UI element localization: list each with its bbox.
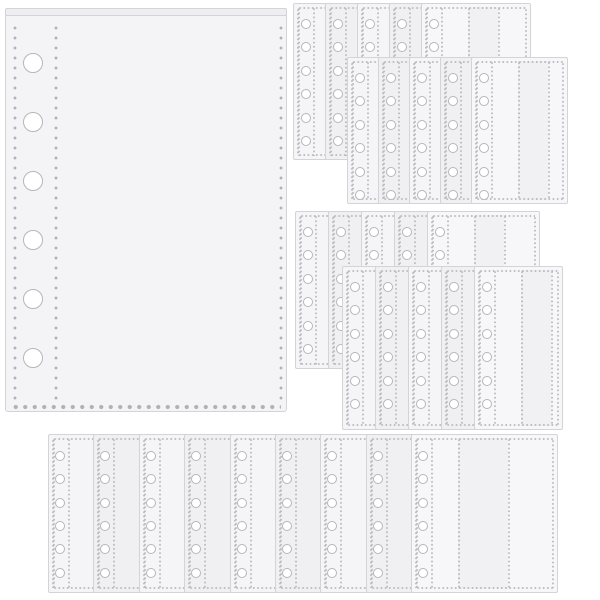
binder-hole <box>373 474 383 484</box>
binder-hole <box>282 568 292 578</box>
binder-hole <box>333 136 343 146</box>
strip-stitch-line <box>340 438 342 589</box>
binder-hole <box>479 120 489 130</box>
binder-hole <box>100 521 110 531</box>
binder-hole <box>482 376 492 386</box>
strip-stitch-line <box>159 438 161 589</box>
binder-hole <box>449 399 459 409</box>
stack-top-right-page-5 <box>471 57 568 204</box>
strip-stitch-line <box>380 270 382 426</box>
binder-hole <box>397 42 407 52</box>
strip-stitch-line <box>446 270 448 426</box>
binder-hole <box>417 120 427 130</box>
binder-hole <box>146 544 156 554</box>
binder-hole <box>355 190 365 200</box>
binder-hole <box>350 329 360 339</box>
strip-stitch-line <box>429 61 431 200</box>
sleeve-top-flap <box>5 8 287 16</box>
binder-hole <box>336 250 346 260</box>
binder-hole <box>303 344 313 354</box>
binder-hole <box>301 19 311 29</box>
binder-hole <box>449 305 459 315</box>
binder-hole <box>482 352 492 362</box>
strip-stitch-line <box>398 61 400 200</box>
binder-hole <box>482 329 492 339</box>
binder-hole <box>479 167 489 177</box>
strip-stitch-line <box>330 7 332 156</box>
binder-hole <box>448 120 458 130</box>
binder-hole <box>100 451 110 461</box>
binder-hole <box>449 282 459 292</box>
stack-middle-right-page-5 <box>474 266 563 430</box>
binder-hole <box>55 544 65 554</box>
stitch-dot-column <box>279 23 283 402</box>
binder-hole <box>191 544 201 554</box>
strip-stitch-line <box>445 61 447 200</box>
binder-hole <box>448 143 458 153</box>
strip-stitch-line <box>298 7 300 156</box>
binder-hole <box>237 544 247 554</box>
binder-hole <box>417 190 427 200</box>
binder-hole <box>383 282 393 292</box>
binder-hole <box>327 474 337 484</box>
strip-stitch-line <box>414 61 416 200</box>
binder-hole <box>383 399 393 409</box>
binder-hole <box>418 451 428 461</box>
binder-hole <box>23 171 43 191</box>
strip-stitch-line <box>113 438 115 589</box>
stitch-line-right <box>557 271 559 425</box>
binder-hole <box>191 568 201 578</box>
binder-hole <box>383 305 393 315</box>
binder-hole <box>355 167 365 177</box>
binder-hole <box>191 451 201 461</box>
binder-hole <box>355 96 365 106</box>
stitch-line-right <box>562 62 564 199</box>
binder-hole <box>417 143 427 153</box>
binder-hole <box>333 19 343 29</box>
strip-stitch-line <box>300 215 302 365</box>
binder-hole <box>100 544 110 554</box>
binder-hole <box>100 568 110 578</box>
binder-hole <box>355 73 365 83</box>
binder-hole <box>303 274 313 284</box>
strip-stitch-line <box>476 61 478 200</box>
binder-hole <box>55 498 65 508</box>
strip-stitch-line <box>295 438 297 589</box>
binder-hole <box>449 376 459 386</box>
bottom-fan-page-9 <box>411 434 558 593</box>
strip-stitch-line <box>68 438 70 589</box>
strip-stitch-line <box>280 438 282 589</box>
binder-hole <box>237 498 247 508</box>
binder-hole <box>23 289 43 309</box>
binder-hole <box>301 113 311 123</box>
binder-hole <box>383 329 393 339</box>
binder-hole <box>55 451 65 461</box>
binder-hole <box>386 167 396 177</box>
strip-stitch-line <box>315 215 317 365</box>
binder-hole <box>327 498 337 508</box>
binder-hole <box>237 474 247 484</box>
binder-hole <box>373 498 383 508</box>
strip-stitch-line <box>491 61 493 200</box>
binder-hole <box>435 227 445 237</box>
binder-hole <box>397 19 407 29</box>
binder-hole <box>418 521 428 531</box>
strip-stitch-line <box>367 61 369 200</box>
large-sleeve-page <box>5 8 287 412</box>
strip-stitch-line <box>333 215 335 365</box>
binder-hole <box>448 167 458 177</box>
binder-hole <box>327 451 337 461</box>
binder-hole <box>373 521 383 531</box>
binder-hole <box>479 96 489 106</box>
strip-stitch-line <box>428 270 430 426</box>
binder-hole <box>282 498 292 508</box>
binder-hole <box>146 498 156 508</box>
strip-stitch-line <box>313 7 315 156</box>
binder-hole <box>386 120 396 130</box>
binder-hole <box>55 568 65 578</box>
stitch-dot-column <box>13 23 17 402</box>
binder-hole <box>448 190 458 200</box>
binder-hole <box>449 329 459 339</box>
binder-hole <box>418 544 428 554</box>
binder-hole <box>237 568 247 578</box>
strip-stitch-line <box>144 438 146 589</box>
binder-hole <box>303 227 313 237</box>
binder-hole <box>23 348 43 368</box>
binder-hole <box>23 53 43 73</box>
binder-hole <box>402 250 412 260</box>
binder-hole <box>23 112 43 132</box>
strip-stitch-line <box>460 61 462 200</box>
strip-stitch-line <box>479 270 481 426</box>
product-photo-binder-sleeves <box>0 0 600 600</box>
binder-hole <box>301 89 311 99</box>
binder-hole <box>383 376 393 386</box>
binder-hole <box>146 474 156 484</box>
binder-hole <box>100 498 110 508</box>
pocket-seam-line <box>508 438 510 589</box>
binder-hole <box>146 568 156 578</box>
strip-stitch-line <box>371 438 373 589</box>
strip-stitch-line <box>189 438 191 589</box>
binder-hole <box>479 73 489 83</box>
binder-hole <box>355 120 365 130</box>
pocket-column-shade <box>458 438 508 589</box>
binder-hole <box>333 89 343 99</box>
binder-hole <box>55 521 65 531</box>
binder-hole <box>416 282 426 292</box>
binder-hole <box>479 190 489 200</box>
strip-stitch-line <box>494 270 496 426</box>
binder-hole <box>417 73 427 83</box>
strip-stitch-line <box>383 61 385 200</box>
strip-stitch-line <box>250 438 252 589</box>
pocket-seam-line <box>551 270 553 426</box>
binder-hole <box>416 352 426 362</box>
binder-hole <box>333 66 343 76</box>
binder-hole <box>373 451 383 461</box>
strip-stitch-line <box>413 270 415 426</box>
binder-hole <box>191 474 201 484</box>
binder-hole <box>482 399 492 409</box>
binder-hole <box>350 305 360 315</box>
strip-stitch-line <box>431 438 433 589</box>
binder-hole <box>282 544 292 554</box>
binder-hole <box>350 352 360 362</box>
binder-hole <box>350 399 360 409</box>
binder-hole <box>386 96 396 106</box>
strip-stitch-line <box>235 438 237 589</box>
pocket-column-shade <box>521 270 551 426</box>
binder-hole <box>282 521 292 531</box>
binder-hole <box>416 399 426 409</box>
binder-hole <box>386 190 396 200</box>
binder-hole <box>55 474 65 484</box>
binder-hole <box>369 227 379 237</box>
binder-hole <box>416 329 426 339</box>
binder-hole <box>333 113 343 123</box>
binder-hole <box>416 376 426 386</box>
binder-hole <box>418 474 428 484</box>
binder-hole <box>23 230 43 250</box>
binder-hole <box>479 143 489 153</box>
binder-hole <box>327 521 337 531</box>
binder-hole <box>402 227 412 237</box>
pocket-seam-line <box>548 61 550 200</box>
binder-hole <box>327 544 337 554</box>
strip-stitch-line <box>53 438 55 589</box>
binder-hole <box>303 297 313 307</box>
binder-hole <box>448 96 458 106</box>
binder-hole <box>418 498 428 508</box>
binder-hole <box>365 19 375 29</box>
binder-hole <box>373 568 383 578</box>
binder-hole <box>282 451 292 461</box>
binder-hole <box>350 376 360 386</box>
stitch-line-right <box>552 439 554 588</box>
binder-hole <box>435 250 445 260</box>
strip-stitch-line <box>461 270 463 426</box>
binder-hole <box>429 19 439 29</box>
binder-hole <box>418 568 428 578</box>
binder-hole <box>429 42 439 52</box>
binder-hole <box>303 250 313 260</box>
pocket-column-shade <box>518 61 548 200</box>
strip-stitch-line <box>204 438 206 589</box>
stitch-dot-column <box>54 23 58 402</box>
strip-stitch-line <box>362 270 364 426</box>
strip-stitch-line <box>386 438 388 589</box>
binder-hole <box>482 305 492 315</box>
strip-stitch-line <box>352 61 354 200</box>
binder-hole <box>417 96 427 106</box>
binder-hole <box>386 143 396 153</box>
binder-hole <box>416 305 426 315</box>
binder-hole <box>301 42 311 52</box>
binder-hole <box>383 352 393 362</box>
binder-hole <box>449 352 459 362</box>
strip-stitch-line <box>347 270 349 426</box>
binder-hole <box>355 143 365 153</box>
binder-hole <box>369 250 379 260</box>
binder-hole <box>482 282 492 292</box>
binder-hole <box>373 544 383 554</box>
binder-hole <box>365 42 375 52</box>
stitch-dot-row-bottom <box>11 404 281 410</box>
binder-hole <box>146 521 156 531</box>
binder-hole <box>282 474 292 484</box>
binder-hole <box>448 73 458 83</box>
binder-hole <box>417 167 427 177</box>
binder-hole <box>191 521 201 531</box>
binder-hole <box>327 568 337 578</box>
binder-hole <box>336 227 346 237</box>
strip-stitch-line <box>325 438 327 589</box>
binder-hole <box>333 42 343 52</box>
binder-hole <box>146 451 156 461</box>
binder-hole <box>386 73 396 83</box>
binder-hole <box>100 474 110 484</box>
strip-stitch-line <box>395 270 397 426</box>
binder-hole <box>301 136 311 146</box>
binder-hole <box>301 66 311 76</box>
binder-hole <box>237 521 247 531</box>
binder-hole <box>237 451 247 461</box>
binder-hole <box>303 321 313 331</box>
binder-hole <box>350 282 360 292</box>
strip-stitch-line <box>98 438 100 589</box>
binder-hole <box>191 498 201 508</box>
strip-stitch-line <box>416 438 418 589</box>
